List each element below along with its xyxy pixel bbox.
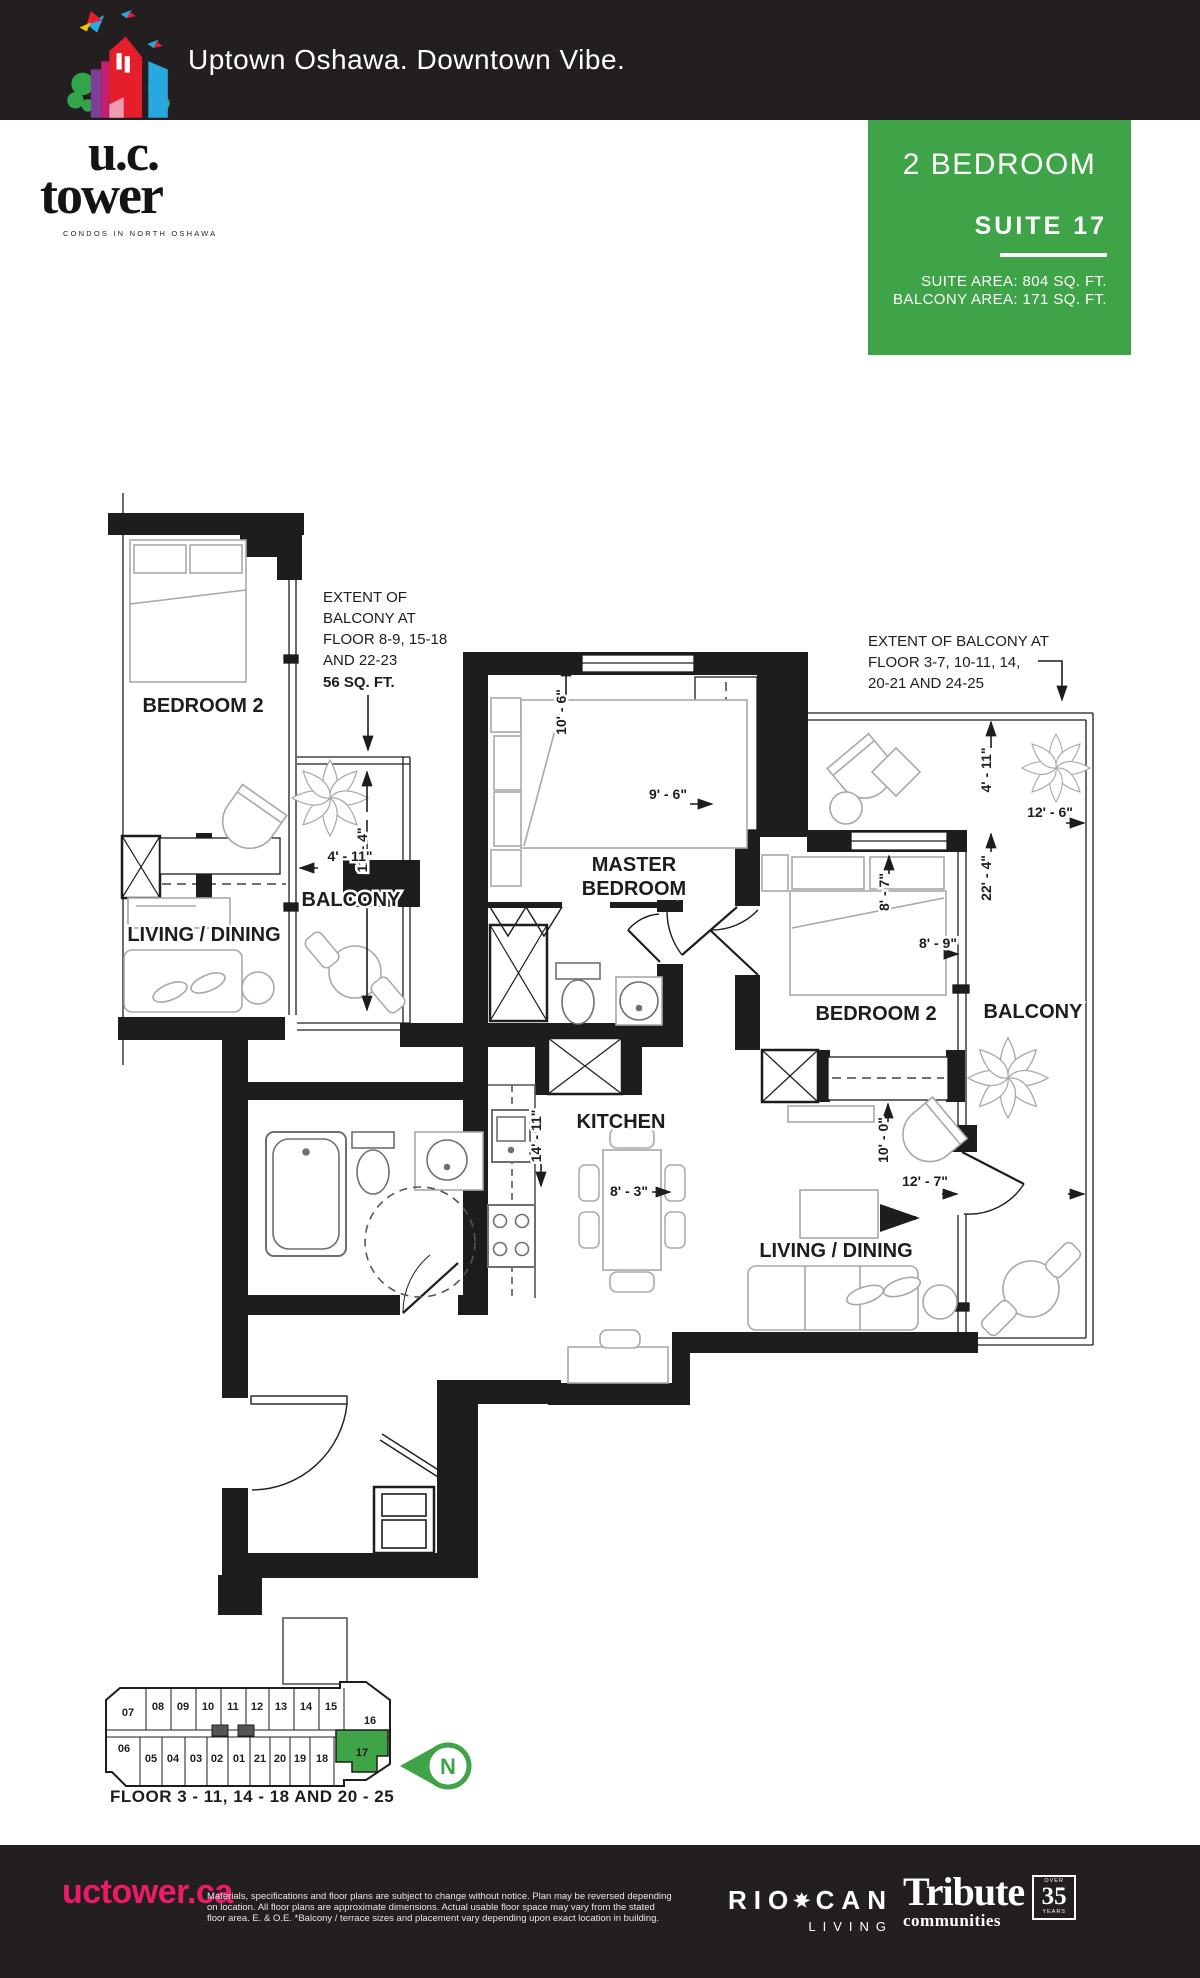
room-label-living-right: LIVING / DINING [759, 1240, 912, 1262]
keyplan-num: 01 [233, 1753, 245, 1765]
keyplan-num: 14 [300, 1701, 313, 1713]
compass-n: N [440, 1754, 456, 1779]
note-right-line3: 20-21 AND 24-25 [868, 675, 984, 692]
disclaimer-line: on location. All floor plans are approxi… [207, 1902, 697, 1913]
kitchen-sink-icon [492, 1110, 530, 1162]
keyplan-num: 12 [251, 1701, 263, 1713]
logo-wordmark-tower: tower [40, 168, 162, 222]
keyplan-num: 04 [167, 1753, 180, 1765]
side-table-neighbour [242, 972, 274, 1004]
top-bar: Uptown Oshawa. Downtown Vibe. [0, 0, 1200, 120]
room-label-bedroom2-right: BEDROOM 2 [815, 1003, 936, 1025]
maple-leaf-icon [792, 1891, 811, 1911]
turning-radius-circle [365, 1187, 475, 1297]
dim-bedroom2-width: 8' - 7" [876, 873, 892, 911]
dim-right-balcony-depth: 4' - 11" [978, 748, 994, 793]
keyplan-num: 02 [211, 1753, 223, 1765]
riocan-word2: CAN [816, 1885, 893, 1916]
keyplan-num: 03 [190, 1753, 202, 1765]
stove-icon [488, 1205, 535, 1267]
room-label-balcony-left: BALCONY [302, 889, 402, 911]
key-plan: 07 08 09 10 11 12 13 14 15 16 06 05 04 0… [106, 1682, 469, 1806]
north-compass-icon: N [400, 1745, 469, 1787]
floor-plan-drawing: BEDROOM 2 LIVING / DINING BALCONY MASTER… [0, 380, 1200, 1820]
keyplan-num: 16 [364, 1715, 376, 1727]
sofa-neighbour [124, 950, 242, 1012]
note-left-line4: AND 22-23 [323, 652, 397, 669]
keyplan-num: 07 [122, 1707, 134, 1719]
note-right-line2: FLOOR 3-7, 10-11, 14, [868, 654, 1020, 671]
washer-dryer-icon [374, 1487, 434, 1553]
room-label-living-left: LIVING / DINING [127, 924, 280, 946]
desk [568, 1330, 668, 1383]
dim-living-balcony-width: 12' - 7" [902, 1173, 948, 1189]
dim-right-balcony-width: 12' - 6" [1027, 804, 1073, 820]
note-left-area: 56 SQ. FT. [323, 674, 395, 691]
keyplan-num: 15 [325, 1701, 337, 1713]
tribute-sub: communities [903, 1911, 1024, 1931]
side-table-living [923, 1285, 957, 1319]
plant-icon [968, 1038, 1048, 1118]
room-label-master-1: MASTER [592, 854, 677, 876]
keyplan-num: 18 [316, 1753, 328, 1765]
bed-bedroom2 [762, 855, 946, 995]
balcony-table-left [303, 930, 407, 1015]
ensuite-toilet-icon [556, 963, 600, 1024]
keyplan-num: 19 [294, 1753, 306, 1765]
footer-bar: uctower.ca Materials, specifications and… [0, 1845, 1200, 1978]
tribute-35-badge: OVER 35 YEARS [1032, 1875, 1076, 1920]
room-label-balcony-right: BALCONY [984, 1001, 1084, 1023]
floorplan-page: Uptown Oshawa. Downtown Vibe. u.c. tower… [0, 0, 1200, 1978]
dim-living-width: 10' - 0" [875, 1117, 891, 1163]
armchair-living [892, 1097, 967, 1172]
note-left-line3: FLOOR 8-9, 15-18 [323, 631, 447, 648]
suite-divider [1000, 253, 1107, 257]
building-icon [67, 37, 170, 118]
balcony-extent-notes: EXTENT OF BALCONY AT FLOOR 8-9, 15-18 AN… [323, 589, 1049, 692]
badge-35: 35 [1034, 1884, 1074, 1909]
toilet-icon [352, 1132, 394, 1194]
disclaimer-text: Materials, specifications and floor plan… [207, 1891, 697, 1924]
ensuite-sink-icon [616, 977, 662, 1025]
room-label-kitchen: KITCHEN [577, 1111, 666, 1133]
note-left-line1: EXTENT OF [323, 589, 407, 606]
keyplan-num: 10 [202, 1701, 214, 1713]
uc-tower-logo-icon [62, 10, 170, 128]
keyplan-num: 13 [275, 1701, 287, 1713]
room-label-bedroom2-left: BEDROOM 2 [142, 695, 263, 717]
keyplan-num-highlighted: 17 [356, 1747, 368, 1759]
keyplan-num: 08 [152, 1701, 164, 1713]
tribute-communities-logo: Tribute communities OVER 35 YEARS [903, 1875, 1076, 1931]
dim-master-width: 10' - 6" [553, 689, 569, 735]
badge-years: YEARS [1034, 1909, 1074, 1915]
dim-bedroom2-depth: 8' - 9" [919, 935, 957, 951]
media-unit [800, 1190, 878, 1238]
logo-subtitle: CONDOS IN NORTH OSHAWA [63, 229, 217, 238]
keyplan-num: 21 [254, 1753, 266, 1765]
dining-table [579, 1128, 685, 1292]
balcony-area: BALCONY AREA: 171 SQ. FT. [892, 291, 1107, 309]
plant-icon [1022, 734, 1090, 802]
disclaimer-line: Materials, specifications and floor plan… [207, 1891, 697, 1902]
balcony-stool [830, 792, 862, 824]
sofa-living [748, 1266, 923, 1330]
bed-neighbour [130, 540, 246, 682]
balcony-table-right [979, 1240, 1083, 1338]
bath-sink-icon [415, 1132, 483, 1190]
keyplan-num: 20 [274, 1753, 286, 1765]
riocan-word1: RIO [728, 1885, 795, 1916]
note-left-line2: BALCONY AT [323, 610, 416, 627]
dim-left-balcony-width: 4' - 11" [328, 848, 373, 864]
keyplan-floor-note: FLOOR 3 - 11, 14 - 18 AND 20 - 25 [110, 1787, 394, 1806]
suite-number: SUITE 17 [892, 212, 1107, 241]
corridor-element [283, 1618, 347, 1684]
suite-info-box: 2 BEDROOM SUITE 17 SUITE AREA: 804 SQ. F… [868, 120, 1131, 355]
dim-dining-width: 8' - 3" [610, 1183, 648, 1199]
tribute-name: Tribute [903, 1875, 1024, 1909]
tagline: Uptown Oshawa. Downtown Vibe. [188, 44, 625, 76]
room-label-master-2: BEDROOM [582, 878, 686, 900]
disclaimer-line: floor area. E. & O.E. *Balcony / terrace… [207, 1913, 697, 1924]
riocan-living-text: LIVING [728, 1919, 893, 1934]
plant-icon [292, 760, 368, 836]
dresser-bedroom2 [788, 1106, 874, 1122]
keyplan-num: 11 [227, 1701, 239, 1713]
suite-area: SUITE AREA: 804 SQ. FT. [892, 273, 1107, 291]
keyplan-num: 05 [145, 1753, 157, 1765]
dim-right-side-length: 22' - 4" [978, 855, 994, 901]
riocan-living-logo: RIO CAN LIVING [728, 1885, 893, 1934]
bathtub-icon [266, 1132, 346, 1256]
dim-master-depth: 9' - 6" [649, 786, 687, 802]
note-right-line1: EXTENT OF BALCONY AT [868, 633, 1049, 650]
suite-type: 2 BEDROOM [892, 148, 1107, 182]
keyplan-num: 09 [177, 1701, 189, 1713]
dim-kitchen-length: 14' - 11" [528, 1110, 544, 1163]
keyplan-num: 06 [118, 1743, 130, 1755]
